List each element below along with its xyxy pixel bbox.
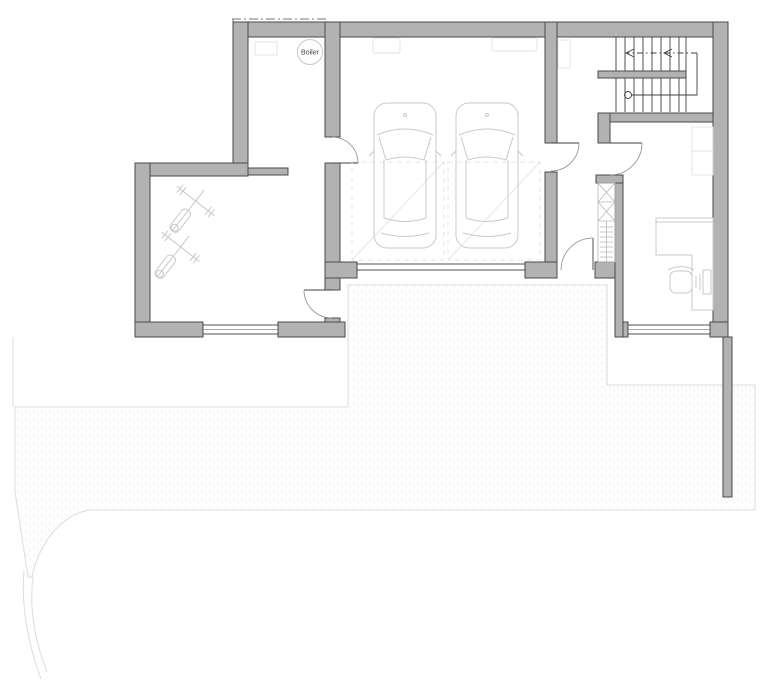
door-hall-exterior <box>561 238 593 270</box>
wall-right <box>713 22 728 337</box>
walkline-start-circle <box>625 92 632 99</box>
wall-top <box>240 22 728 37</box>
wall-office-bottom-right <box>710 322 728 337</box>
floor-plan-drawing: Boiler <box>0 0 768 683</box>
wall-unit <box>255 42 277 55</box>
office <box>656 127 713 310</box>
wall-garage-right-upper <box>545 22 557 143</box>
gym-room <box>138 175 223 292</box>
boiler-label: Boiler <box>301 50 320 57</box>
garage-door <box>357 264 525 270</box>
wall-gym-top-stub <box>248 168 288 175</box>
floor-plan-page: Boiler <box>0 0 768 683</box>
stair-handrail <box>598 71 686 78</box>
wall-boiler-left <box>233 22 248 165</box>
wall-gym-left <box>135 163 150 337</box>
staircase <box>598 37 697 112</box>
desk <box>656 218 713 310</box>
door-garage-hall <box>551 143 579 171</box>
wall-closet-top <box>596 175 623 183</box>
garage-shelf <box>373 38 400 53</box>
window-office <box>628 325 710 334</box>
paved-driveway <box>13 285 755 679</box>
wall-below-stairs <box>598 113 713 122</box>
radiator <box>558 40 570 68</box>
door-boiler-garage <box>332 137 358 163</box>
garage <box>352 38 540 260</box>
office-chair <box>668 267 694 294</box>
car-icon <box>369 103 441 248</box>
wall-gym-bottom-right <box>278 322 345 337</box>
garage-shelf <box>492 38 537 51</box>
computer <box>696 270 711 294</box>
window-gym <box>203 325 278 334</box>
wall-gym-bottom-left <box>135 322 203 337</box>
weight-bench-icon <box>153 175 223 246</box>
retaining-wall <box>723 337 732 497</box>
wall-garage-bottom-pier-left <box>325 262 357 278</box>
boiler-room: Boiler <box>255 40 323 65</box>
wall-office-left <box>615 183 623 337</box>
door-hall-office <box>610 143 642 175</box>
door-gym-exterior <box>304 290 332 318</box>
wardrobe-x-hatch <box>598 183 615 262</box>
wall-garage-bottom-pier-right <box>525 262 557 278</box>
wall-gym-top <box>135 163 248 176</box>
car-icon <box>451 103 523 248</box>
wall-boiler-garage <box>325 22 340 137</box>
wall-office-bottom-left <box>623 322 628 337</box>
wall-hall-office-upper <box>598 113 610 143</box>
